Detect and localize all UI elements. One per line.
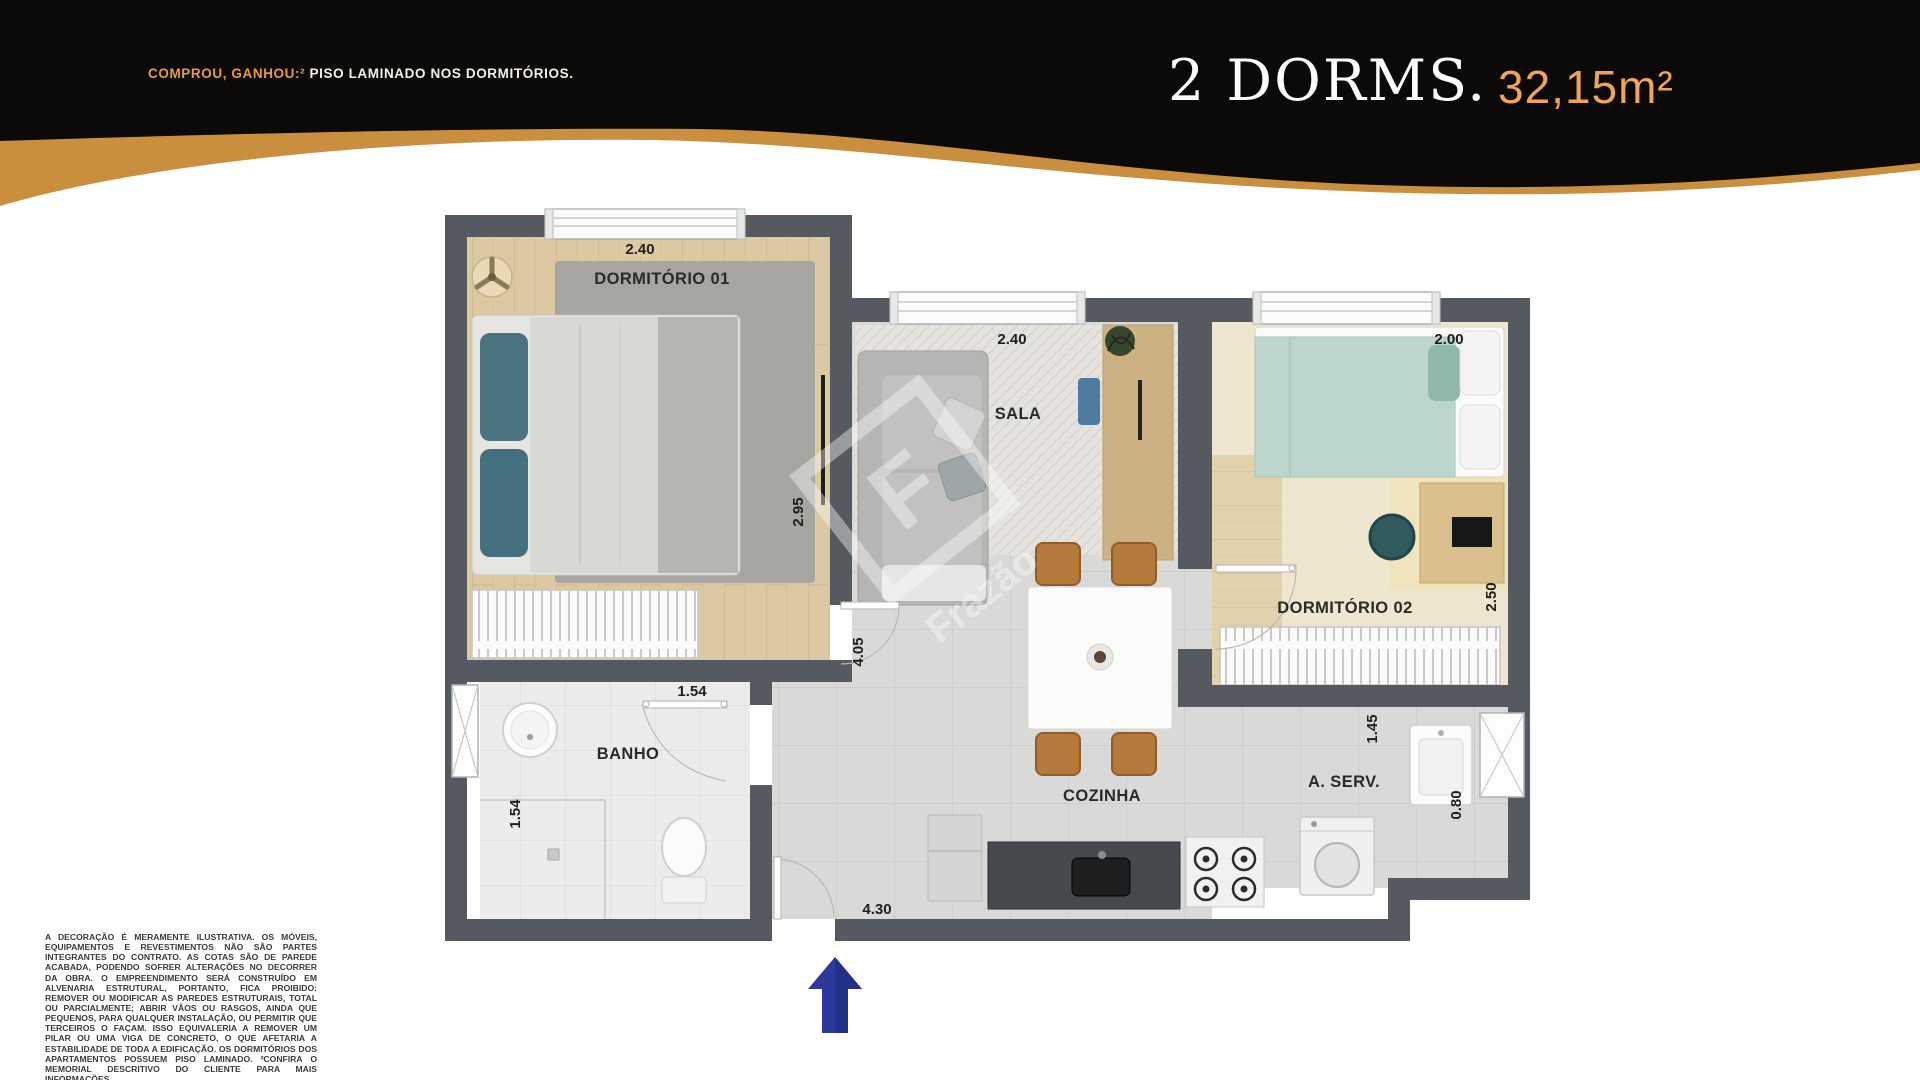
room-label-dorm1: DORMITÓRIO 01 [594,269,729,288]
corridor-floor [772,682,857,919]
plant-icon [1105,326,1135,356]
promo-highlight: COMPROU, GANHOU:² [148,66,305,81]
dim-sala-width: 2.40 [997,331,1026,348]
dim-dorm1-width: 2.40 [625,241,654,258]
unit-area-value: 32,15m² [1498,60,1674,114]
dim-dorm1-depth: 2.95 [790,497,807,526]
dim-banho-depth: 1.54 [507,799,524,829]
dim-aserv-width: 1.45 [1364,714,1381,743]
entrance-arrow-icon [808,957,862,1033]
dining-chair [1112,733,1156,775]
dim-corridor: 4.05 [850,637,867,666]
floorplan: F Frazão 2.40 DORMITÓRIO 01 2.95 2.40 SA… [430,165,1590,1065]
dining-chair [1036,733,1080,775]
dorm2-wardrobe [1220,627,1500,685]
promo-rest: PISO LAMINADO NOS DORMITÓRIOS. [305,66,573,81]
pillow [1460,405,1500,469]
dim-bottom-width: 4.30 [862,901,891,918]
toilet [662,818,706,903]
laptop [1452,517,1492,547]
room-label-banho: BANHO [597,745,660,763]
washing-machine [1300,817,1374,895]
dorm1-wardrobe [472,590,698,658]
dining-chair [1112,543,1156,585]
desk-chair [1370,515,1414,559]
dorm1-window [545,209,745,239]
bathroom-sink [503,703,557,757]
promo-banner-text: COMPROU, GANHOU:² PISO LAMINADO NOS DORM… [148,66,574,81]
stove [1186,837,1264,907]
pillow [1460,331,1500,395]
dim-aserv-depth: 0.80 [1448,790,1465,819]
single-bed [1255,327,1504,477]
ceiling-fan-icon [472,257,512,297]
tv-panel [821,375,825,505]
legal-disclaimer: A DECORAÇÃO É MERAMENTE ILUSTRATIVA. OS … [45,932,317,1080]
pillow [480,333,528,441]
room-label-sala: SALA [995,405,1042,423]
unit-type-title: 2 DORMS. [1168,48,1487,114]
pillow [1428,345,1460,401]
sala-window [890,292,1085,324]
sink [1072,858,1130,896]
sideboard [1103,325,1173,560]
shower-drain [548,849,559,860]
kitchen-counter [988,842,1180,909]
fridge [928,815,982,901]
dorm2-window [1253,292,1440,324]
dim-banho-door: 1.54 [677,683,707,700]
dining-chair [1036,543,1080,585]
room-label-aserv: A. SERV. [1308,773,1380,791]
room-label-cozinha: COZINHA [1063,787,1141,805]
double-bed [472,315,740,575]
dim-dorm2-width: 2.00 [1434,331,1463,348]
dim-dorm2-depth: 2.50 [1483,582,1500,611]
room-label-dorm2: DORMITÓRIO 02 [1277,598,1412,617]
accent-chair [1078,378,1100,425]
pillow [480,449,528,557]
desk [1420,483,1504,583]
